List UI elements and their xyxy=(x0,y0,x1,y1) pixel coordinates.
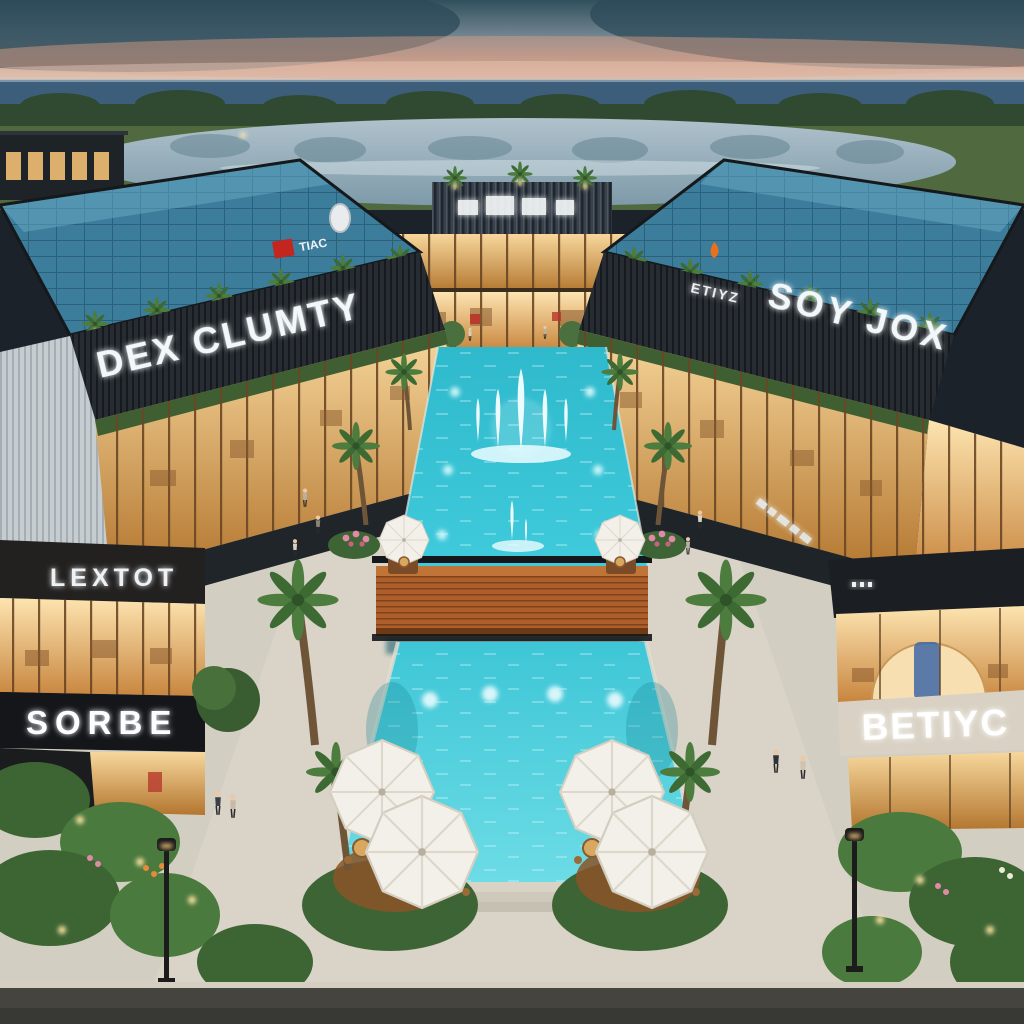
left-mid-sign: LEXTOT xyxy=(50,564,178,592)
right-lower-sign: BETIYC xyxy=(861,702,1010,748)
umbrella xyxy=(366,796,478,908)
road xyxy=(0,982,1024,1024)
right-lower-block: BETIYC xyxy=(828,548,1024,830)
architectural-rendering: TIAC DEX CLUMTY LEXTOT SORBE ETIYZ SOY J… xyxy=(0,0,1024,1024)
umbrella xyxy=(596,796,708,908)
left-oval-logo xyxy=(330,204,350,232)
left-red-logo xyxy=(272,239,295,259)
left-lower-sign: SORBE xyxy=(26,704,178,741)
